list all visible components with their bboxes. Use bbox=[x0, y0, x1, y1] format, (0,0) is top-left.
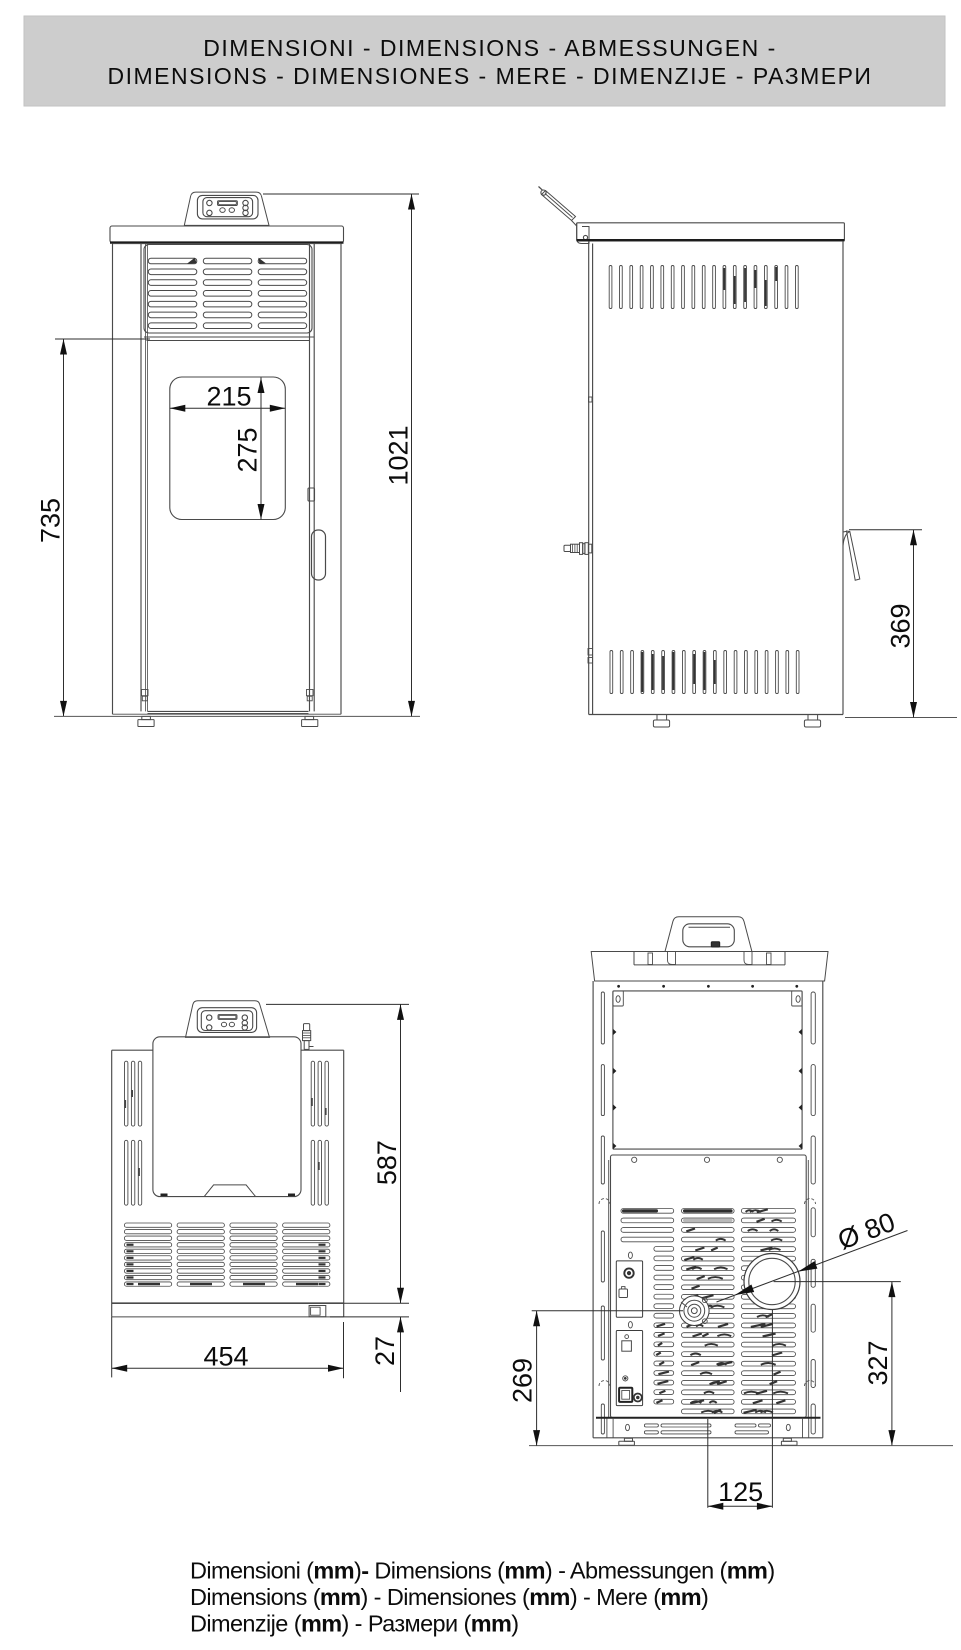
svg-text:269: 269 bbox=[507, 1358, 537, 1403]
svg-text:DIMENSIONS - DIMENSIONES - MER: DIMENSIONS - DIMENSIONES - MERE - DIMENZ… bbox=[108, 63, 873, 89]
svg-text:DIMENSIONI - DIMENSIONS - ABME: DIMENSIONI - DIMENSIONS - ABMESSUNGEN - bbox=[203, 35, 777, 61]
svg-text:27: 27 bbox=[370, 1336, 400, 1366]
svg-text:735: 735 bbox=[36, 498, 66, 543]
svg-text:Dimenzije (mm) - Размери (mm): Dimenzije (mm) - Размери (mm) bbox=[190, 1610, 519, 1636]
svg-text:327: 327 bbox=[863, 1340, 893, 1385]
svg-text:215: 215 bbox=[206, 382, 251, 412]
svg-text:369: 369 bbox=[886, 603, 916, 648]
svg-text:1021: 1021 bbox=[384, 425, 414, 485]
svg-text:275: 275 bbox=[233, 427, 263, 472]
svg-text:Dimensions (mm) - Dimensiones: Dimensions (mm) - Dimensiones (mm) - Mer… bbox=[190, 1584, 708, 1610]
svg-text:125: 125 bbox=[718, 1477, 763, 1507]
svg-text:Dimensioni (mm)- Dimensions (m: Dimensioni (mm)- Dimensions (mm) - Abmes… bbox=[190, 1557, 775, 1583]
svg-text:587: 587 bbox=[372, 1140, 402, 1185]
svg-text:454: 454 bbox=[203, 1342, 248, 1372]
